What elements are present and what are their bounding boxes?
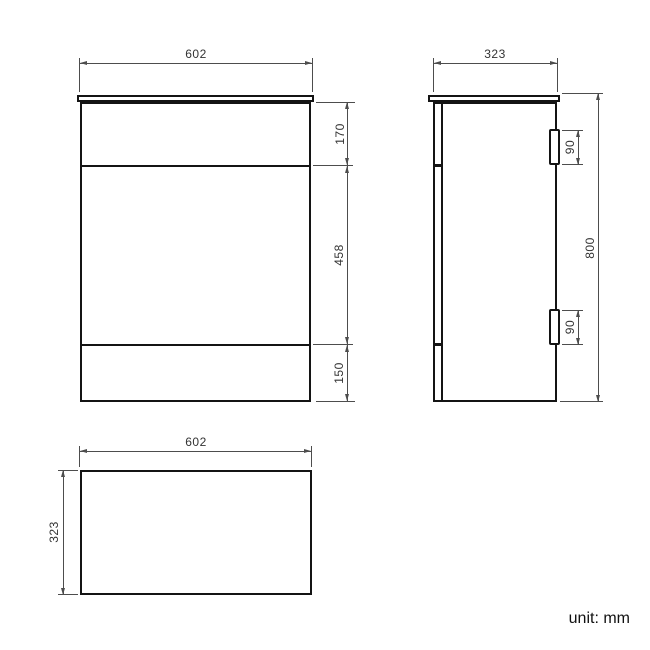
dim-arrow-down-icon xyxy=(345,158,349,165)
side-height-label: 800 xyxy=(583,228,597,268)
side-height-dim-line xyxy=(598,93,599,402)
top-depth-dim-line xyxy=(63,470,64,595)
side-depth-label: 323 xyxy=(475,47,515,61)
side-back-panel-line xyxy=(441,103,443,401)
front-section-top-label: 170 xyxy=(333,114,347,154)
dim-arrow-up-icon xyxy=(61,470,65,477)
dim-arrow-left-icon xyxy=(80,61,87,65)
hinge-top xyxy=(549,129,560,165)
dim-arrow-up-icon xyxy=(596,93,600,100)
unit-note: unit: mm xyxy=(520,610,630,628)
dim-arrow-down-icon xyxy=(345,394,349,401)
dim-arrow-right-icon xyxy=(304,449,311,453)
front-chain-ext-bottom xyxy=(316,401,355,402)
top-depth-label: 323 xyxy=(47,512,61,552)
side-depth-dim-line xyxy=(433,63,558,64)
front-divider-line-upper xyxy=(82,165,309,167)
front-divider-line-lower xyxy=(82,344,309,346)
side-joint-mark-upper xyxy=(433,164,442,167)
front-section-middle-label: 458 xyxy=(332,235,346,275)
top-view-outline xyxy=(80,470,312,595)
dim-arrow-right-icon xyxy=(550,61,557,65)
front-cabinet-body xyxy=(80,102,311,402)
dim-arrow-up-icon xyxy=(345,102,349,109)
front-chain-dim-line xyxy=(347,102,348,402)
hinge-top-label: 90 xyxy=(563,132,577,162)
top-width-dim-line xyxy=(79,451,312,452)
technical-drawing-canvas: 602 170 458 150 323 xyxy=(0,0,650,650)
dim-arrow-left-icon xyxy=(80,449,87,453)
front-section-bottom-label: 150 xyxy=(332,353,346,393)
dim-arrow-down-icon xyxy=(596,395,600,402)
front-width-label: 602 xyxy=(176,47,216,61)
dim-arrow-down-icon xyxy=(61,588,65,595)
dim-arrow-up-icon xyxy=(345,345,349,352)
side-countertop xyxy=(428,95,560,102)
top-width-label: 602 xyxy=(176,435,216,449)
front-width-dim-line xyxy=(79,63,313,64)
dim-arrow-right-icon xyxy=(305,61,312,65)
hinge-bottom xyxy=(549,309,560,345)
front-countertop xyxy=(77,95,314,102)
side-cabinet-body xyxy=(433,102,557,402)
dim-arrow-down-icon xyxy=(345,337,349,344)
side-joint-mark-lower xyxy=(433,343,442,346)
front-chain-ext-top xyxy=(316,102,355,103)
dim-arrow-up-icon xyxy=(345,166,349,173)
dim-arrow-left-icon xyxy=(434,61,441,65)
top-width-ext-line-right xyxy=(311,446,312,467)
hinge-bottom-label: 90 xyxy=(563,312,577,342)
